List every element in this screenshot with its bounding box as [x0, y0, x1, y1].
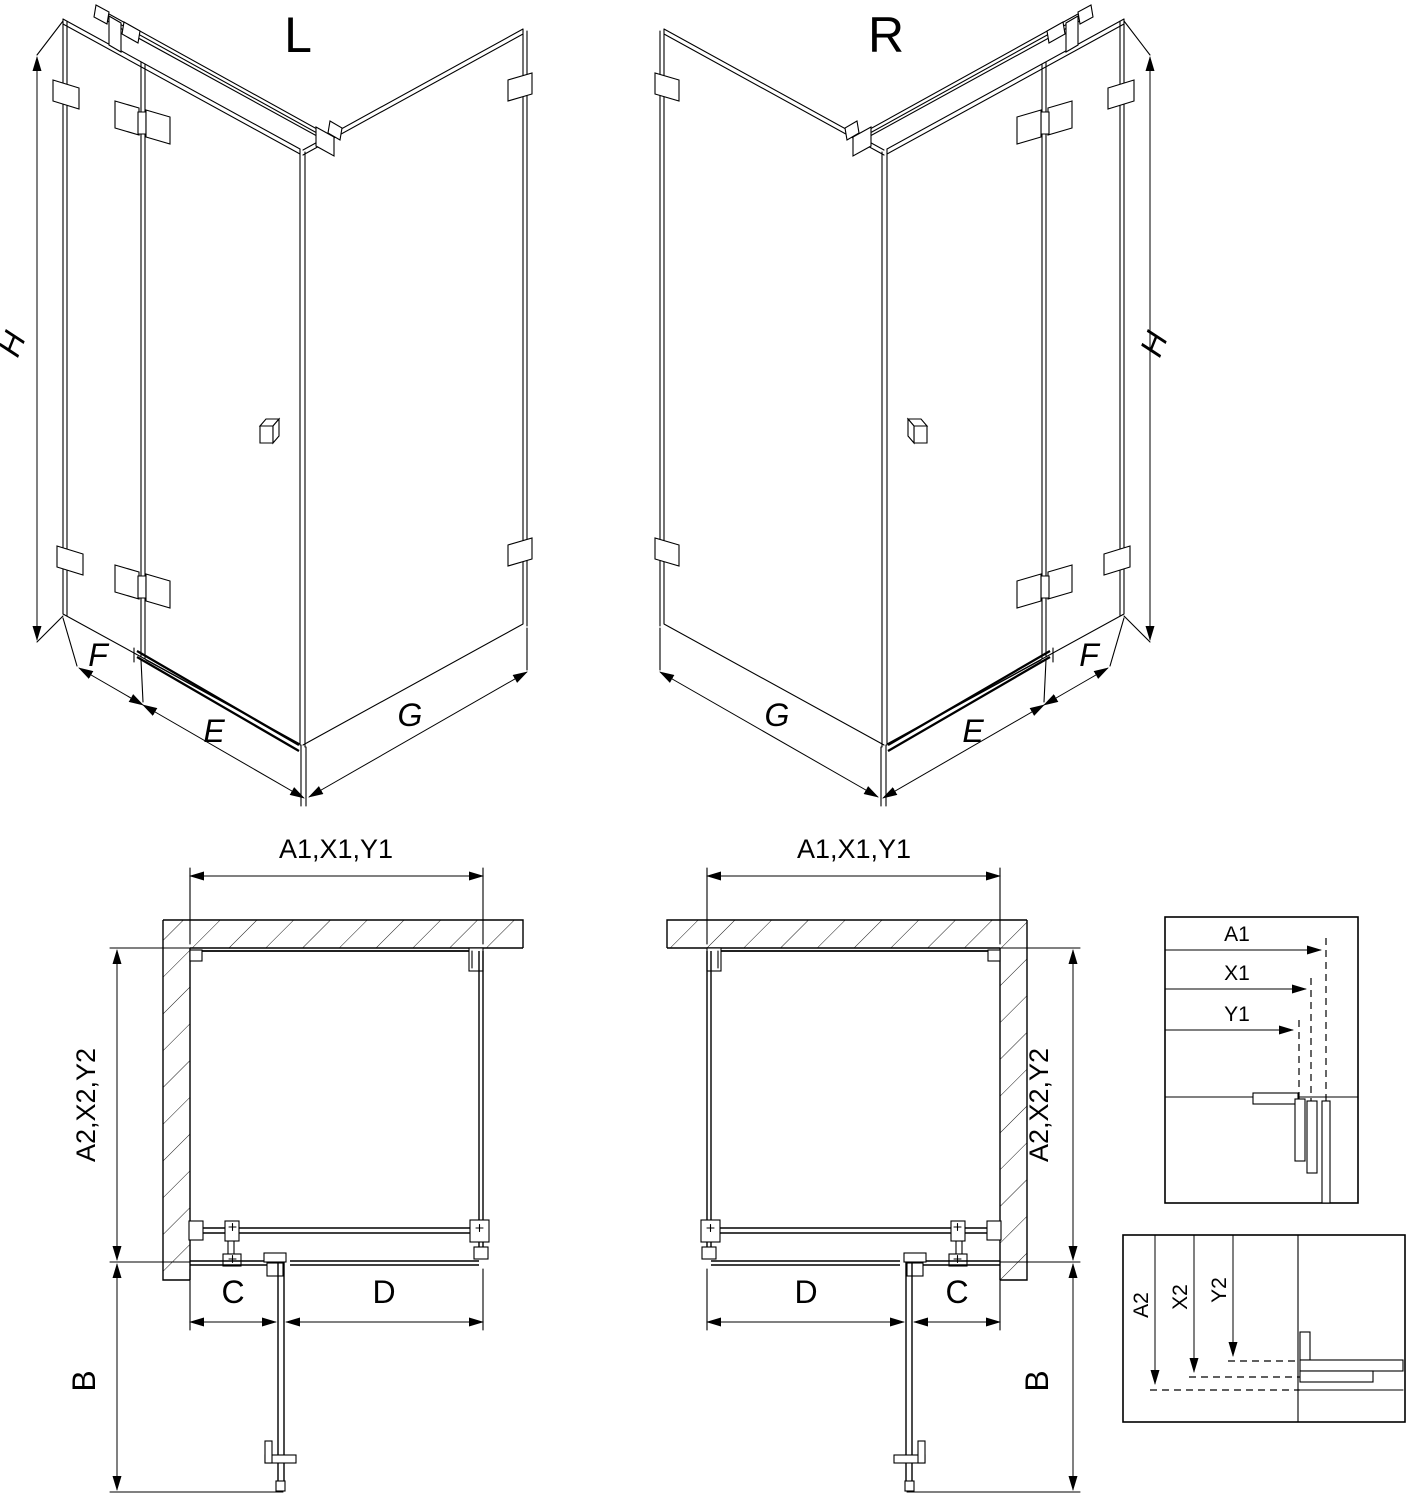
profile-section: [1253, 1093, 1330, 1203]
plan-view-left: A1,X1,Y1 A2,X2,Y2 C D B: [66, 834, 523, 1492]
detail-label-A1: A1: [1224, 923, 1250, 946]
dim-label-C: C: [221, 1274, 244, 1310]
dim-label-E: E: [962, 713, 984, 749]
dim-label-G: G: [765, 697, 790, 733]
detail-label-X2: X2: [1169, 1284, 1192, 1310]
dim-label-B: B: [1019, 1370, 1055, 1391]
dim-label-D: D: [372, 1274, 395, 1310]
shower-enclosure-diagram: L H F E G R H F E G A1,X1,Y1 A2,X2,Y2 C …: [0, 0, 1416, 1499]
dim-label-G: G: [398, 697, 423, 733]
dim-label-H: H: [0, 326, 33, 362]
dim-label-F: F: [1079, 637, 1101, 673]
wall-hatch-top: [163, 920, 523, 948]
detail-label-A2: A2: [1130, 1292, 1153, 1318]
dim-label-A1: A1,X1,Y1: [279, 834, 393, 864]
wall-hatch-top: [667, 920, 1027, 948]
dim-label-D: D: [794, 1274, 817, 1310]
variant-label-left: L: [284, 7, 312, 63]
dim-label-B: B: [66, 1370, 102, 1391]
detail-label-Y1: Y1: [1224, 1003, 1250, 1026]
dim-label-C: C: [945, 1274, 968, 1310]
detail-box-width-refs: A1 X1 Y1: [1165, 917, 1358, 1203]
wall-hatch-side: [1000, 948, 1027, 1280]
technical-drawing-sheet: L H F E G R H F E G A1,X1,Y1 A2,X2,Y2 C …: [0, 0, 1416, 1499]
iso-view-left: L H F E G: [0, 5, 532, 806]
dim-label-F: F: [88, 637, 110, 673]
detail-box-depth-refs: A2 X2 Y2: [1123, 1235, 1405, 1422]
plan-view-right: A1,X1,Y1 A2,X2,Y2 D C B: [667, 834, 1080, 1492]
dim-label-H: H: [1133, 326, 1175, 362]
profile-section: [1300, 1332, 1403, 1390]
wall-hatch-side: [163, 948, 190, 1280]
iso-view-right: R H F E G: [655, 5, 1175, 806]
dim-label-A1: A1,X1,Y1: [797, 834, 911, 864]
detail-frame: [1123, 1235, 1405, 1422]
detail-label-Y2: Y2: [1208, 1277, 1231, 1303]
dim-label-A2: A2,X2,Y2: [71, 1048, 101, 1162]
variant-label-right: R: [868, 7, 904, 63]
dim-label-A2: A2,X2,Y2: [1024, 1048, 1054, 1162]
detail-label-X1: X1: [1224, 962, 1250, 985]
dim-label-E: E: [203, 713, 225, 749]
